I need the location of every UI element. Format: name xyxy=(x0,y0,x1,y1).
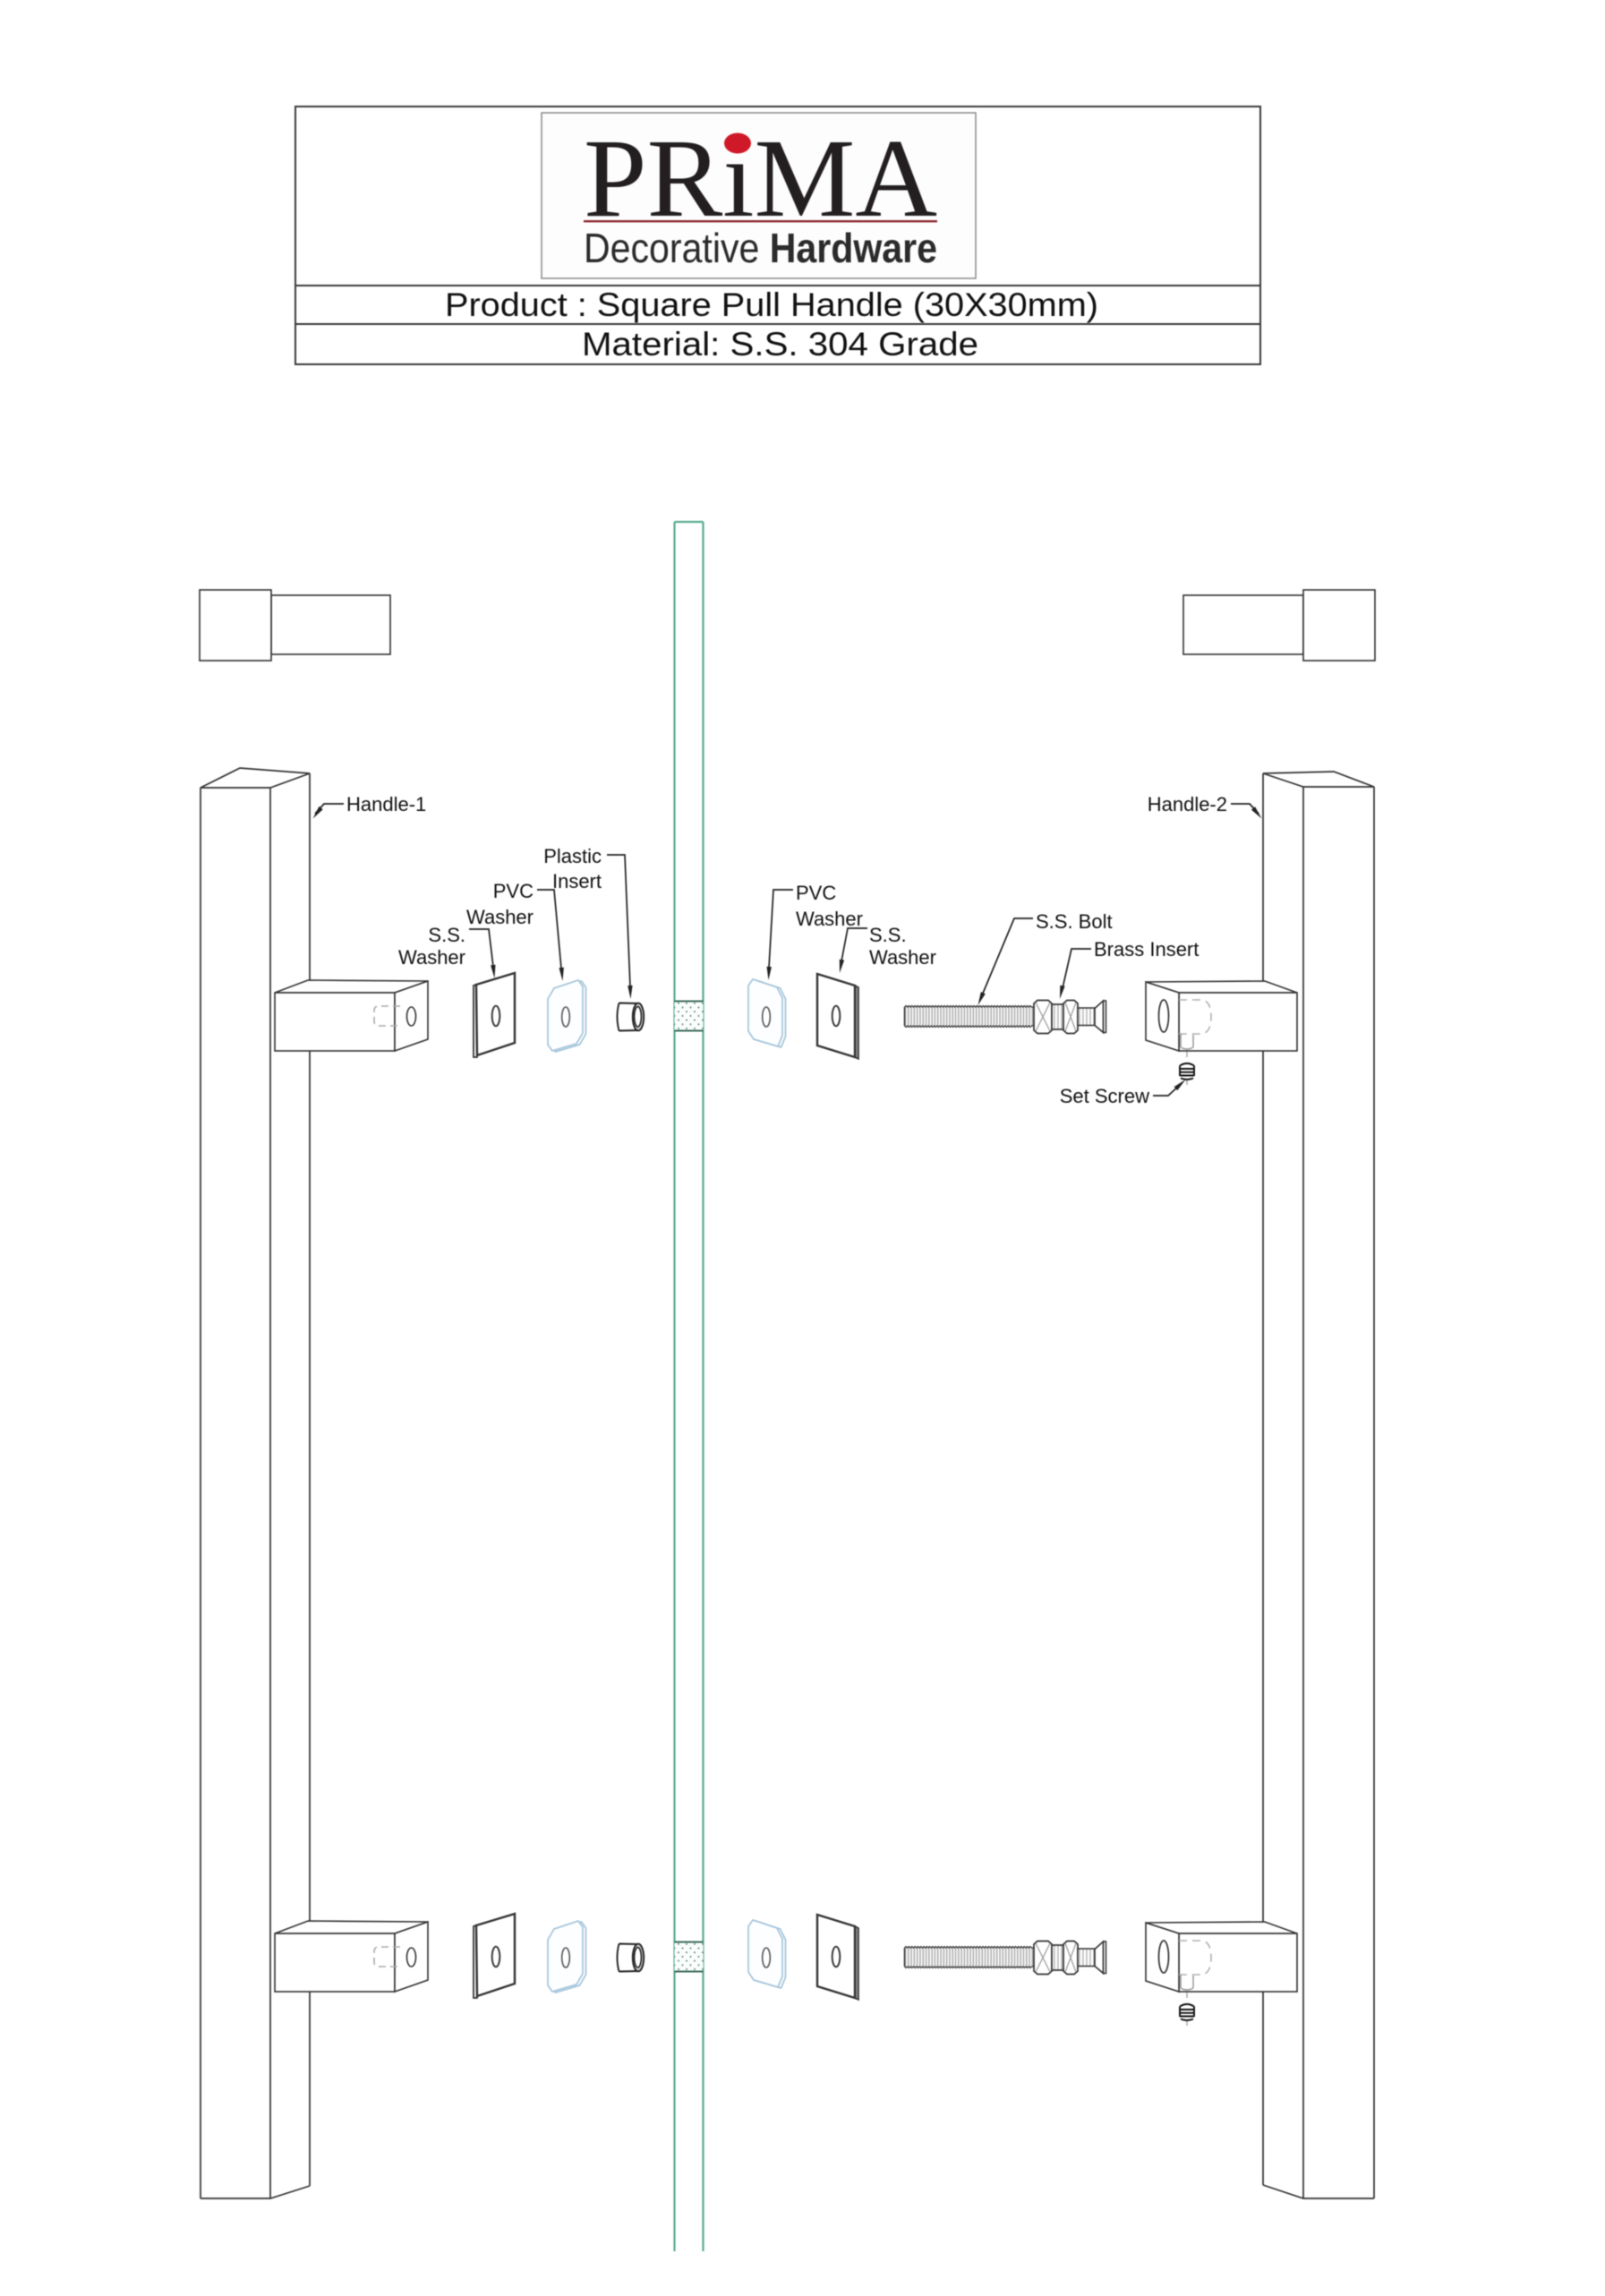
svg-text:S.S. Bolt: S.S. Bolt xyxy=(1036,910,1113,933)
svg-text:Handle-2: Handle-2 xyxy=(1148,793,1227,815)
svg-text:Set Screw: Set Screw xyxy=(1060,1085,1149,1107)
svg-text:Material: S.S. 304 Grade: Material: S.S. 304 Grade xyxy=(582,326,978,363)
svg-text:S.S.: S.S. xyxy=(428,924,465,946)
svg-text:Washer: Washer xyxy=(398,946,465,969)
svg-text:S.S.: S.S. xyxy=(869,924,907,946)
svg-text:PVC: PVC xyxy=(796,882,836,904)
svg-text:Handle-1: Handle-1 xyxy=(346,793,426,815)
svg-text:PVC: PVC xyxy=(493,880,534,902)
svg-text:Decorative Hardware: Decorative Hardware xyxy=(584,225,937,271)
svg-text:Product : Square Pull Handle (: Product : Square Pull Handle (30X30mm) xyxy=(445,286,1098,323)
svg-text:Plastic: Plastic xyxy=(543,845,602,867)
svg-text:Washer: Washer xyxy=(466,906,534,928)
svg-text:Washer: Washer xyxy=(796,908,863,930)
svg-text:Washer: Washer xyxy=(869,946,936,969)
svg-text:Brass Insert: Brass Insert xyxy=(1094,938,1199,960)
svg-text:Insert: Insert xyxy=(552,870,602,892)
